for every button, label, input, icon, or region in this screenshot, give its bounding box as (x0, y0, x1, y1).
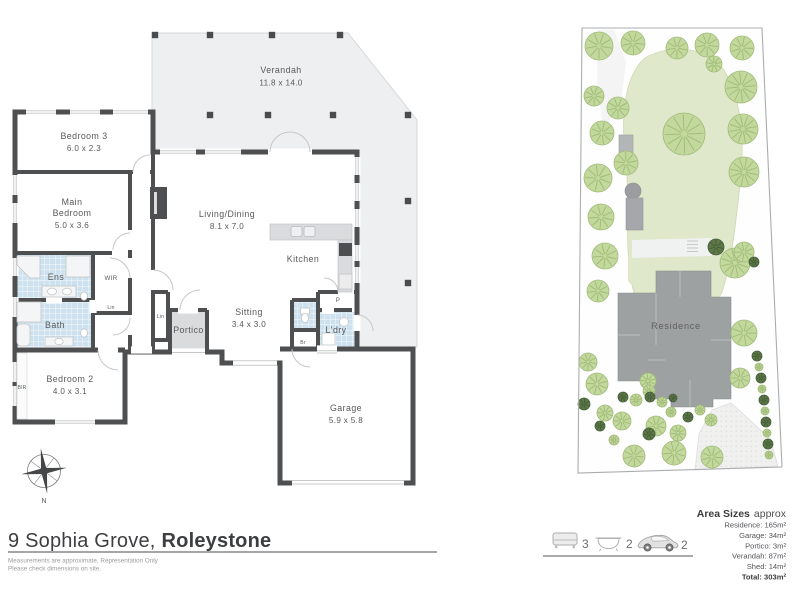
tree-icon (585, 32, 613, 60)
compass-icon: N (18, 445, 70, 505)
wall-opening (178, 306, 198, 313)
wall-opening (89, 300, 96, 313)
laundry-label: L'dry (325, 325, 346, 335)
tree-icon (609, 435, 619, 445)
ensuite-label: Ens (48, 272, 65, 282)
verandah-post (330, 112, 336, 118)
tank-icon (625, 183, 641, 199)
verandah-post (207, 112, 213, 118)
wall-opening (98, 346, 118, 353)
tree-icon (765, 451, 773, 459)
wall-opening (268, 148, 312, 155)
tree-icon (584, 86, 604, 106)
wall-opening (353, 209, 360, 227)
verandah-post (405, 280, 411, 286)
bedroom2-dims: 4.0 x 3.1 (53, 387, 87, 396)
wall-opening (70, 108, 100, 115)
tree-icon (731, 320, 757, 346)
area-row-residence: Residence: 165m² (724, 521, 786, 530)
tree-icon (755, 363, 763, 371)
tree-icon (729, 157, 759, 187)
tree-icon (666, 37, 688, 59)
tree-icon (607, 97, 629, 119)
verandah-post (337, 32, 343, 38)
bush-icon (752, 351, 762, 361)
site-plan: Residence (578, 28, 782, 473)
tree-icon (590, 121, 614, 145)
floorplan-page: Verandah 11.8 x 14.0 Bedroom 3 6.0 x 2.3… (0, 0, 800, 600)
plan-svg: Verandah 11.8 x 14.0 Bedroom 3 6.0 x 2.3… (0, 0, 800, 600)
tree-icon (597, 405, 613, 421)
wall-opening (160, 148, 196, 155)
tree-icon (592, 243, 618, 269)
tree-icon (728, 114, 758, 144)
walkway (632, 238, 712, 258)
oven-icon (339, 243, 352, 256)
wall-opening (46, 296, 62, 303)
tree-icon (663, 113, 705, 155)
wall-opening (131, 346, 152, 353)
tree-icon (670, 425, 686, 441)
bush-icon (708, 239, 724, 255)
title-suburb: Roleystone (162, 530, 272, 552)
area-row-total: Total: 303m² (742, 573, 787, 582)
fireplace (150, 187, 167, 219)
wall-opening (353, 183, 360, 201)
wall-opening (317, 345, 337, 352)
garage-label: Garage (330, 403, 362, 413)
tree-icon (730, 36, 754, 60)
bir-label: BIR (18, 385, 27, 391)
pantry-label: P (336, 297, 340, 304)
bush-icon (683, 412, 693, 422)
title-block: 9 Sophia Grove,Roleystone Measurements a… (8, 530, 437, 573)
wall-opening (11, 203, 18, 223)
wall-opening (205, 148, 241, 155)
area-sizes-heading-light: approx (754, 508, 787, 520)
tree-icon (706, 56, 722, 72)
verandah-post (269, 32, 275, 38)
tree-icon (657, 397, 667, 407)
portico-label: Portico (173, 325, 204, 335)
tree-icon (613, 412, 631, 430)
broom-label: Br (300, 340, 306, 346)
bedroom3-dims: 6.0 x 2.3 (67, 144, 101, 153)
tree-icon (621, 31, 645, 55)
sitting-dims: 3.4 x 3.0 (232, 320, 266, 329)
bush-icon (618, 392, 628, 402)
living-label: Living/Dining (199, 209, 255, 219)
bush-icon (643, 428, 655, 440)
area-sizes-heading-bold: Area Sizes (697, 508, 750, 520)
feature-icons: 3 2 2 (543, 533, 693, 556)
tree-icon (763, 429, 771, 437)
tree-icon (614, 151, 638, 175)
residence-label: Residence (651, 321, 701, 331)
verandah-dims: 11.8 x 14.0 (259, 79, 302, 88)
title-address: 9 Sophia Grove, (8, 530, 156, 552)
tree-icon (730, 368, 750, 388)
verandah-label: Verandah (260, 65, 301, 75)
tree-icon (705, 414, 717, 426)
page-title: 9 Sophia Grove,Roleystone (8, 530, 271, 552)
tree-icon (588, 204, 614, 230)
wall-opening (353, 245, 360, 261)
tree-icon (758, 385, 766, 393)
tree-icon (725, 71, 757, 103)
sitting-label: Sitting (235, 307, 263, 317)
tree-icon (630, 394, 642, 406)
bush-icon (578, 398, 590, 410)
wall-opening (353, 267, 360, 283)
wall-opening (322, 306, 334, 313)
living-dims: 8.1 x 7.0 (210, 222, 244, 231)
wir-label: WIR (105, 275, 118, 282)
bath-count: 2 (626, 537, 633, 551)
disclaimer-line2: Please check dimensions on site. (8, 566, 101, 573)
verandah-post (152, 32, 158, 38)
bedroom2-label: Bedroom 2 (46, 374, 93, 384)
bush-icon (645, 392, 655, 402)
bed-icon (553, 533, 577, 548)
disclaimer-line1: Measurements are approximate, Representa… (8, 558, 159, 565)
bedroom3-label: Bedroom 3 (60, 131, 107, 141)
wall-opening (133, 168, 150, 175)
area-row-portico: Portico: 3m² (745, 541, 786, 550)
floor-plan: Verandah 11.8 x 14.0 Bedroom 3 6.0 x 2.3… (11, 32, 417, 487)
tree-icon (586, 373, 608, 395)
verandah-post (265, 112, 271, 118)
bush-icon (749, 257, 759, 267)
tree-icon (761, 407, 769, 415)
main-bedroom-label2: Bedroom (53, 208, 92, 218)
tree-icon (662, 441, 686, 465)
wall-opening (353, 157, 360, 175)
area-sizes-heading: Area Sizesapprox (697, 508, 787, 520)
linen-entry-label: Lin (157, 314, 164, 320)
verandah-post (405, 112, 411, 118)
wall-opening (26, 108, 56, 115)
wall-opening (112, 249, 128, 256)
fridge-icon (339, 274, 352, 289)
area-row-verandah: Verandah: 87m² (732, 552, 787, 561)
car-icon (638, 535, 678, 551)
garage-dims: 5.9 x 5.8 (329, 416, 363, 425)
wall-opening (353, 315, 360, 331)
tree-icon (695, 33, 719, 57)
car-count: 2 (681, 538, 688, 552)
tree-icon (587, 280, 609, 302)
linen-hall-label: Lin (107, 305, 114, 311)
compass-north-label: N (41, 498, 46, 505)
bush-icon (761, 417, 771, 427)
bush-icon (763, 439, 773, 449)
shed (626, 198, 643, 230)
main-bedroom-label1: Main (62, 197, 83, 207)
bush-icon (595, 421, 605, 431)
verandah-post (405, 198, 411, 204)
tree-icon (695, 405, 705, 415)
main-bedroom-dims: 5.0 x 3.6 (55, 221, 89, 230)
bush-icon (759, 395, 769, 405)
shed (619, 135, 633, 153)
bath-icon (596, 538, 622, 551)
bush-icon (669, 394, 677, 402)
sink-icon (291, 227, 302, 237)
bed-count: 3 (582, 537, 589, 551)
verandah-post (207, 32, 213, 38)
sink-icon (304, 227, 315, 237)
tree-icon (579, 353, 597, 371)
wall-opening (113, 108, 148, 115)
wall-opening (55, 418, 95, 425)
area-row-garage: Garage: 34m² (739, 531, 786, 540)
area-sizes: Area Sizesapprox Residence: 165m² Garage… (697, 508, 787, 582)
tree-icon (666, 407, 676, 417)
bush-icon (756, 373, 766, 383)
wall-opening (11, 175, 18, 195)
bathroom-label: Bath (45, 320, 65, 330)
tree-icon (623, 445, 645, 467)
area-row-shed: Shed: 14m² (747, 562, 787, 571)
tree-icon (701, 446, 723, 468)
kitchen-label: Kitchen (287, 254, 320, 264)
wall-opening (149, 270, 156, 290)
tree-icon (584, 164, 612, 192)
